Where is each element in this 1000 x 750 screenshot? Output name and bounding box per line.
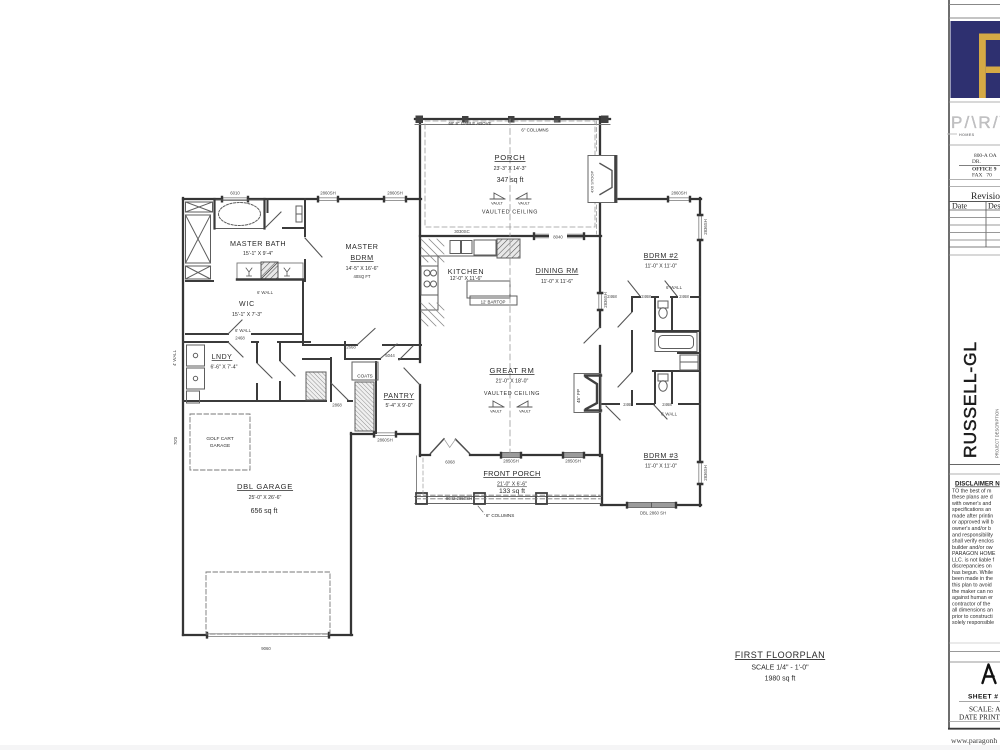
svg-text:2468: 2468 <box>607 294 617 299</box>
svg-text:specifications an: specifications an <box>952 507 991 513</box>
svg-text:2860SH: 2860SH <box>320 191 336 196</box>
svg-text:68' 8" GABLE ABOVE: 68' 8" GABLE ABOVE <box>449 121 492 126</box>
svg-text:45" FP: 45" FP <box>576 389 581 403</box>
svg-text:DR.: DR. <box>972 159 981 165</box>
svg-text:DBL GARAGE: DBL GARAGE <box>237 482 293 491</box>
svg-text:21'-0" X 18'-0": 21'-0" X 18'-0" <box>496 379 529 385</box>
svg-text:COATS: COATS <box>357 374 372 379</box>
svg-text:with owner's and: with owner's and <box>952 501 991 507</box>
svg-text:against human er: against human er <box>952 595 993 601</box>
svg-text:VAULT: VAULT <box>518 202 530 206</box>
svg-text:2850SH: 2850SH <box>503 459 519 464</box>
svg-text:6' WALL: 6' WALL <box>257 290 274 295</box>
svg-text:www.paragonh: www.paragonh <box>951 736 997 745</box>
svg-text:GOLF CART: GOLF CART <box>206 436 233 442</box>
svg-text:solely responsible: solely responsible <box>952 620 994 626</box>
svg-text:HOMES: HOMES <box>959 133 975 137</box>
svg-text:shall verify enclos: shall verify enclos <box>952 539 994 545</box>
svg-text:347 sq ft: 347 sq ft <box>497 177 524 184</box>
svg-text:11'-0" X 11'-0": 11'-0" X 11'-0" <box>645 464 677 470</box>
svg-text:VAULTED CEILING: VAULTED CEILING <box>484 391 540 397</box>
svg-text:2860SH: 2860SH <box>377 438 393 443</box>
svg-text:2668: 2668 <box>346 345 356 350</box>
svg-text:6068: 6068 <box>445 460 455 465</box>
svg-text:owner's and/or b: owner's and/or b <box>952 526 991 532</box>
svg-text:SCALE 1/4" - 1'-0": SCALE 1/4" - 1'-0" <box>751 665 809 672</box>
svg-text:1980 sq ft: 1980 sq ft <box>765 676 796 683</box>
svg-text:15'-1" X 9'-4": 15'-1" X 9'-4" <box>243 251 273 257</box>
svg-text:2468: 2468 <box>235 336 245 341</box>
svg-text:14'-5" X 16'-6": 14'-5" X 16'-6" <box>346 266 379 272</box>
svg-text:PROJECT DESCRIPTION: PROJECT DESCRIPTION <box>995 409 1000 458</box>
svg-text:' 6" COLUMNS: ' 6" COLUMNS <box>484 513 515 518</box>
svg-text:2836SH: 2836SH <box>703 219 708 235</box>
svg-text:RUSSELL-GL: RUSSELL-GL <box>960 341 980 458</box>
svg-text:this plan to avoid: this plan to avoid <box>952 583 992 589</box>
svg-text:2860SH: 2860SH <box>387 191 403 196</box>
svg-text:25'-0" X 26'-6": 25'-0" X 26'-6" <box>249 495 282 501</box>
svg-text:21'-0" X 6'-6": 21'-0" X 6'-6" <box>497 482 527 488</box>
svg-text:SHEET #: SHEET # <box>968 694 998 701</box>
svg-text:656 sq ft: 656 sq ft <box>251 508 278 515</box>
svg-text:TO the best of m: TO the best of m <box>952 488 992 494</box>
svg-text:builder and/or ow: builder and/or ow <box>952 545 993 551</box>
svg-text:KITCHEN: KITCHEN <box>448 267 484 276</box>
svg-text:FAX 70: FAX 70 <box>972 173 992 179</box>
svg-text:3030SC: 3030SC <box>454 229 470 234</box>
svg-text:GARAGE: GARAGE <box>210 443 231 449</box>
svg-text:Date: Date <box>952 202 968 211</box>
svg-text:2850SH: 2850SH <box>565 459 581 464</box>
svg-text:FRONT PORCH: FRONT PORCH <box>483 469 540 478</box>
svg-text:DINING RM: DINING RM <box>536 266 579 275</box>
svg-text:12' BARTOP: 12' BARTOP <box>481 300 506 305</box>
svg-text:VAULTED CEILING: VAULTED CEILING <box>482 210 538 216</box>
svg-text:11'-0" X 11'-6": 11'-0" X 11'-6" <box>541 279 573 285</box>
svg-text:2468: 2468 <box>679 294 689 299</box>
svg-text:2860SH: 2860SH <box>671 191 687 196</box>
svg-text:2468: 2468 <box>623 402 633 407</box>
svg-text:6" COLUMNS: 6" COLUMNS <box>521 128 548 133</box>
svg-text:contractor of the: contractor of the <box>952 601 990 607</box>
svg-text:VAULT: VAULT <box>491 202 503 206</box>
svg-text:12'-0" X 11'-6": 12'-0" X 11'-6" <box>450 276 483 282</box>
svg-text:6'-6" X 7'-4": 6'-6" X 7'-4" <box>210 365 237 371</box>
svg-text:BDRM #2: BDRM #2 <box>644 251 679 260</box>
svg-text:6' WALL: 6' WALL <box>666 285 683 290</box>
svg-text:15'-1" X 7'-3": 15'-1" X 7'-3" <box>232 312 262 318</box>
svg-text:133 sq ft: 133 sq ft <box>499 488 525 495</box>
svg-text:2468: 2468 <box>662 402 672 407</box>
svg-text:23'-3" X 14'-3": 23'-3" X 14'-3" <box>494 166 527 172</box>
svg-text:or approved will b: or approved will b <box>952 520 994 526</box>
svg-text:Des: Des <box>988 202 1000 211</box>
svg-text:VAULT: VAULT <box>490 410 502 414</box>
svg-text:2836SH: 2836SH <box>703 465 708 481</box>
svg-text:PARAGON HOME: PARAGON HOME <box>952 551 996 557</box>
svg-text:LNDY: LNDY <box>212 354 233 361</box>
svg-text:DATE PRINT: DATE PRINT <box>959 714 1000 722</box>
svg-text:PORCH: PORCH <box>495 153 526 162</box>
svg-text:prior to constructi: prior to constructi <box>952 614 993 620</box>
svg-text:SCALE: A: SCALE: A <box>969 706 1000 714</box>
svg-text:BDRM: BDRM <box>350 253 373 262</box>
svg-text:6010: 6010 <box>230 191 240 196</box>
svg-text:11'-0" X 11'-0": 11'-0" X 11'-0" <box>645 264 677 270</box>
svg-text:4' WALL: 4' WALL <box>172 349 177 366</box>
svg-text:BDRM #3: BDRM #3 <box>644 451 679 460</box>
svg-text:discrepancies on: discrepancies on <box>952 564 992 570</box>
svg-text:P/\R/\: P/\R/\ <box>951 113 1000 132</box>
svg-text:4X6 STOOP: 4X6 STOOP <box>590 171 595 193</box>
svg-text:5044: 5044 <box>385 353 395 358</box>
svg-text:GREAT RM: GREAT RM <box>490 366 535 375</box>
svg-text:WIC: WIC <box>239 301 255 308</box>
svg-text:all dimensions an: all dimensions an <box>952 608 993 614</box>
svg-text:been made in the: been made in the <box>952 576 993 582</box>
svg-text:2468: 2468 <box>641 294 651 299</box>
svg-text:2868: 2868 <box>332 403 342 408</box>
svg-text:MASTER: MASTER <box>346 242 379 251</box>
svg-text:and responsibility: and responsibility <box>952 532 993 538</box>
svg-text:these plans are d: these plans are d <box>952 495 993 501</box>
svg-text:the maker can no: the maker can no <box>952 589 993 595</box>
svg-text:made after printin: made after printin <box>952 513 993 519</box>
svg-text:PANTRY: PANTRY <box>384 393 415 400</box>
svg-text:DBL 2860 SH: DBL 2860 SH <box>640 511 666 516</box>
svg-text:5'-4" X 9'-0": 5'-4" X 9'-0" <box>385 403 412 409</box>
svg-text:LLC. is not liable f: LLC. is not liable f <box>952 557 995 563</box>
svg-text:6' WALL: 6' WALL <box>661 412 678 417</box>
svg-text:40SQ FT: 40SQ FT <box>354 274 371 279</box>
svg-text:has begun. While: has begun. While <box>952 570 993 576</box>
svg-text:Revisio: Revisio <box>971 192 1000 202</box>
svg-text:MASTER BATH: MASTER BATH <box>230 239 286 248</box>
svg-text:8040: 8040 <box>553 235 563 240</box>
svg-text:VAULT: VAULT <box>519 410 531 414</box>
svg-text:70'0: 70'0 <box>173 436 178 445</box>
svg-text:8042 2850SH: 8042 2850SH <box>446 496 472 501</box>
svg-text:6' WALL: 6' WALL <box>235 328 252 333</box>
svg-text:2836SH: 2836SH <box>603 292 608 308</box>
svg-text:9060: 9060 <box>261 646 271 651</box>
svg-text:FIRST FLOORPLAN: FIRST FLOORPLAN <box>735 650 825 660</box>
svg-text:DISCLAIMER N: DISCLAIMER N <box>955 481 1000 488</box>
